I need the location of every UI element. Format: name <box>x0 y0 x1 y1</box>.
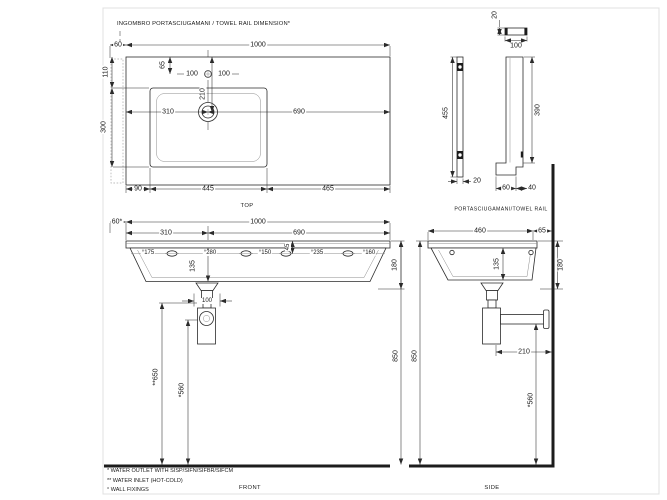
dimension-label: 100 <box>185 71 199 78</box>
dimension-label: 40 <box>527 185 537 192</box>
dimension-label: 465 <box>321 186 335 193</box>
dimension-label: 65 <box>537 228 547 235</box>
dimension-label: 850 <box>412 349 419 363</box>
dimension-label: °175 <box>141 250 155 256</box>
dimension-label: 135 <box>190 259 197 273</box>
dimension-label: 60 <box>501 185 511 192</box>
dimension-label: 135 <box>494 257 501 271</box>
dimension-label: 100 <box>217 71 231 78</box>
dimension-label: 60 <box>113 42 123 49</box>
dimension-label: 180 <box>392 258 399 272</box>
dimension-labels-layer: 6010001106510010021031069030090445465201… <box>0 0 667 500</box>
dimension-label: 110 <box>103 65 110 78</box>
dimension-label: 20 <box>472 178 482 185</box>
dimension-label: 690 <box>292 109 306 116</box>
dimension-label: 445 <box>201 186 215 193</box>
dimension-label: 100 <box>509 43 523 50</box>
dimension-label: *560 <box>528 392 535 408</box>
dimension-label: 460 <box>473 228 487 235</box>
technical-drawing-sheet: INGOMBRO PORTASCIUGAMANI / TOWEL RAIL DI… <box>0 0 667 500</box>
dimension-label: *560 <box>179 382 186 398</box>
dimension-label: 1000 <box>249 219 267 226</box>
dimension-label: 310 <box>161 109 175 116</box>
dimension-label: 310 <box>159 230 173 237</box>
dimension-label: °235 <box>310 250 324 256</box>
dimension-label: 60* <box>111 219 124 226</box>
dimension-label: **650 <box>153 367 160 386</box>
dimension-label: 1000 <box>249 42 267 49</box>
dimension-label: 690 <box>292 230 306 237</box>
dimension-label: 90 <box>133 186 143 193</box>
dimension-label: 100 <box>201 298 213 304</box>
dimension-label: 65 <box>160 60 167 70</box>
dimension-label: 300 <box>101 120 108 134</box>
dimension-label: 45 <box>285 243 291 252</box>
dimension-label: 210 <box>517 349 531 356</box>
dimension-label: 210 <box>200 87 207 101</box>
dimension-label: °280 <box>203 250 217 256</box>
dimension-label: 20 <box>492 10 499 20</box>
dimension-label: 850 <box>393 349 400 363</box>
dimension-label: °160 <box>362 250 376 256</box>
dimension-label: 455 <box>443 106 450 120</box>
dimension-label: 390 <box>535 103 542 117</box>
dimension-label: °150 <box>258 250 272 256</box>
dimension-label: 180 <box>558 258 565 272</box>
